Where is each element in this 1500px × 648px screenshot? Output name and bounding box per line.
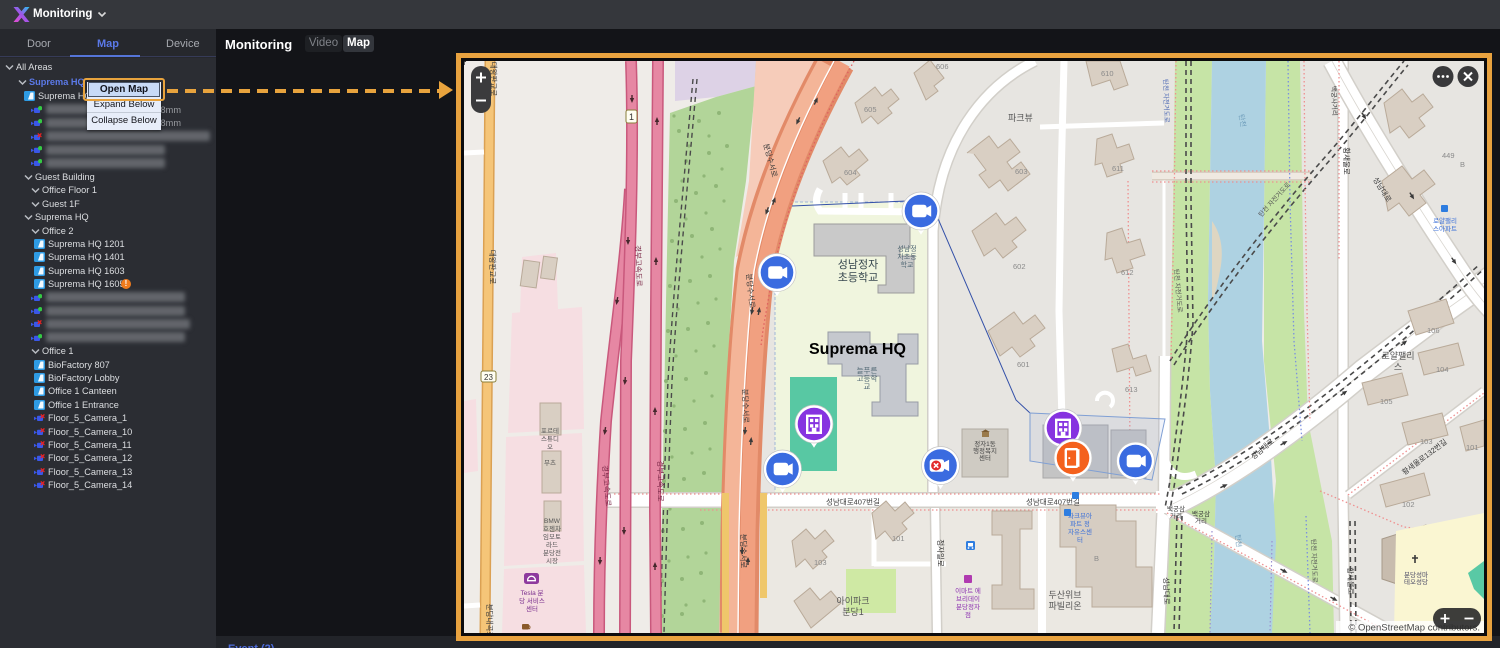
svg-text:테오성당: 테오성당 xyxy=(1404,577,1428,586)
svg-text:606: 606 xyxy=(936,62,949,71)
svg-text:초등학교: 초등학교 xyxy=(838,271,878,284)
svg-text:분당수서로: 분당수서로 xyxy=(740,388,751,423)
svg-text:604: 604 xyxy=(844,168,857,177)
svg-text:대왕판교로: 대왕판교로 xyxy=(488,250,497,285)
svg-text:611: 611 xyxy=(1112,164,1124,173)
svg-text:103: 103 xyxy=(1420,437,1433,446)
svg-text:스: 스 xyxy=(1394,362,1402,372)
svg-text:분당정자: 분당정자 xyxy=(956,602,980,611)
svg-text:Tesla 분: Tesla 분 xyxy=(521,589,544,597)
svg-text:449: 449 xyxy=(1442,151,1455,160)
svg-text:자초등: 자초등 xyxy=(897,252,917,261)
svg-text:102: 102 xyxy=(1402,500,1415,509)
svg-text:B: B xyxy=(1460,160,1465,169)
svg-text:612: 612 xyxy=(1121,268,1134,277)
svg-text:분당내곡로: 분당내곡로 xyxy=(485,604,495,633)
svg-text:정자일로: 정자일로 xyxy=(936,539,946,567)
svg-text:경부고속도로: 경부고속도로 xyxy=(633,245,644,287)
svg-text:101: 101 xyxy=(892,534,905,543)
svg-text:교: 교 xyxy=(864,382,871,391)
svg-text:백궁삼: 백궁삼 xyxy=(1192,509,1210,518)
svg-text:이마트 에: 이마트 에 xyxy=(955,586,981,595)
svg-text:성남대로407번길: 성남대로407번길 xyxy=(826,498,880,507)
svg-text:101: 101 xyxy=(1466,443,1479,452)
svg-text:파크뷰아: 파크뷰아 xyxy=(1068,511,1092,520)
svg-text:BMW: BMW xyxy=(544,518,561,525)
svg-text:스튜디: 스튜디 xyxy=(541,434,559,443)
svg-text:105: 105 xyxy=(1380,397,1393,406)
svg-text:오: 오 xyxy=(547,443,553,451)
svg-text:당 서비스: 당 서비스 xyxy=(519,596,545,605)
svg-text:무츠: 무츠 xyxy=(544,459,556,467)
svg-text:아이파크: 아이파크 xyxy=(836,596,869,606)
svg-text:황새울로: 황새울로 xyxy=(1346,567,1357,595)
svg-text:분당1: 분당1 xyxy=(842,607,864,617)
svg-text:1: 1 xyxy=(629,112,634,122)
svg-text:센터: 센터 xyxy=(526,604,538,613)
svg-text:시장: 시장 xyxy=(546,556,558,565)
svg-text:분당수서로: 분당수서로 xyxy=(739,534,749,569)
svg-text:106: 106 xyxy=(1427,326,1440,335)
svg-text:백궁삼: 백궁삼 xyxy=(1167,504,1185,513)
svg-text:103: 103 xyxy=(814,558,827,567)
svg-text:호젠차: 호젠차 xyxy=(543,524,561,533)
svg-text:센터: 센터 xyxy=(979,453,991,462)
svg-text:포르테: 포르테 xyxy=(541,427,559,435)
svg-text:602: 602 xyxy=(1013,262,1026,271)
svg-text:경부고속도로: 경부고속도로 xyxy=(656,460,666,501)
svg-text:점: 점 xyxy=(965,611,971,619)
svg-text:터: 터 xyxy=(1077,535,1083,544)
svg-text:성남대로407번길: 성남대로407번길 xyxy=(1026,498,1080,507)
svg-text:파빌리온: 파빌리온 xyxy=(1048,601,1081,611)
svg-text:거리: 거리 xyxy=(1195,516,1207,525)
svg-text:603: 603 xyxy=(1015,167,1028,176)
svg-text:605: 605 xyxy=(864,105,877,114)
svg-text:성남정자: 성남정자 xyxy=(838,258,878,271)
svg-text:황새울로: 황새울로 xyxy=(1342,147,1352,175)
svg-text:601: 601 xyxy=(1017,360,1030,369)
svg-text:두산위브: 두산위브 xyxy=(1048,590,1081,600)
svg-text:학교: 학교 xyxy=(901,260,914,269)
svg-text:자유스센: 자유스센 xyxy=(1068,527,1092,536)
svg-text:행정복지: 행정복지 xyxy=(973,446,997,455)
svg-text:파크뷰: 파크뷰 xyxy=(1008,113,1033,123)
svg-text:성남대로: 성남대로 xyxy=(1162,577,1172,605)
svg-text:로얄팰리: 로얄팰리 xyxy=(1381,350,1414,361)
svg-text:613: 613 xyxy=(1125,385,1138,394)
svg-text:거리: 거리 xyxy=(1170,511,1182,520)
svg-text:로얄팰리: 로얄팰리 xyxy=(1433,216,1457,225)
svg-text:분당성마: 분당성마 xyxy=(1404,570,1428,579)
svg-text:브리데이: 브리데이 xyxy=(956,594,980,603)
svg-text:라드: 라드 xyxy=(546,540,558,549)
svg-text:Suprema HQ: Suprema HQ xyxy=(809,341,906,358)
svg-text:104: 104 xyxy=(1436,365,1449,374)
svg-text:임모토: 임모토 xyxy=(543,533,561,541)
svg-text:23: 23 xyxy=(484,373,493,382)
svg-text:분당전: 분당전 xyxy=(543,548,561,557)
svg-text:스아파트: 스아파트 xyxy=(1433,224,1457,233)
svg-text:정자1동: 정자1동 xyxy=(974,439,996,448)
svg-text:B: B xyxy=(1094,554,1099,563)
svg-text:610: 610 xyxy=(1101,69,1114,78)
svg-text:성남정: 성남정 xyxy=(897,244,916,253)
svg-text:파트 정: 파트 정 xyxy=(1070,519,1090,528)
